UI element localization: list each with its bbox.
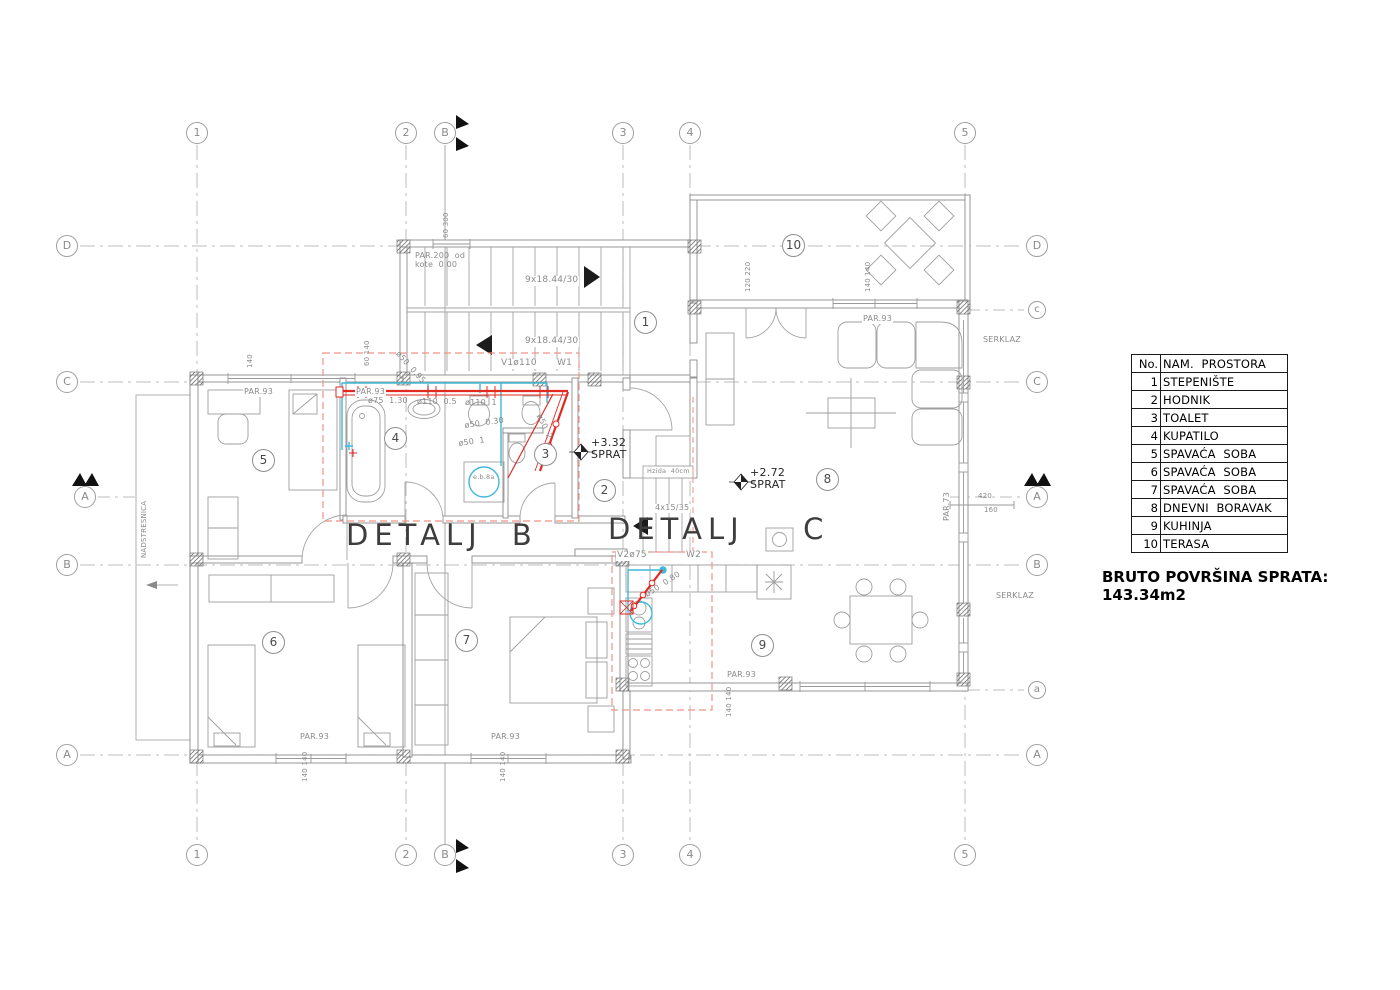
legend-room-no: 7 [1132,481,1161,499]
legend-room-name: SPAVAĆA SOBA [1161,481,1288,499]
axis-row-b-left: B [56,554,78,576]
legend-room-no: 8 [1132,499,1161,517]
room-circle-10: 10 [782,234,805,257]
legend-room-no: 1 [1132,373,1161,391]
legend-row: 9KUHINJA [1132,517,1288,535]
label-boiler: e.b.8a [473,474,495,481]
axis-col-4-bottom: 4 [679,844,701,866]
room-circle-4: 4 [384,427,407,450]
bedroom5-furniture [208,390,337,559]
label-par93-6: PAR.93 [490,733,521,742]
legend-room-name: KUHINJA [1161,517,1288,535]
legend-room-no: 6 [1132,463,1161,481]
axis-col-2-bottom: 2 [395,844,417,866]
label-serklaz-bottom: SERKLAZ [996,592,1034,601]
legend-room-name: KUPATILO [1161,427,1288,445]
pipe-label-75: ø75 1.30 [368,397,408,406]
label-v2: V2ø75 [616,551,648,561]
label-sprat-2: SPRAT [750,479,786,491]
label-w2: W2 [685,551,702,561]
dim-160: 160 [984,507,998,515]
axis-col-5-bottom: 5 [954,844,976,866]
legend-room-no: 4 [1132,427,1161,445]
legend-header-no: No. [1132,355,1161,373]
bathroom-fixtures [347,396,540,502]
stair-direction-arrows [476,266,648,535]
legend-room-name: DNEVNI BORAVAK [1161,499,1288,517]
label-par93-1: PAR.93 [243,388,274,397]
label-kote: kote 0.00 [415,261,457,270]
legend-row: 2HODNIK [1132,391,1288,409]
canopy-nadstresnica [136,395,190,740]
label-nadstresnica: NADSTRESNICA [141,501,149,558]
axis-section-b-bottom: B [434,844,456,866]
legend-room-name: TERASA [1161,535,1288,553]
grid-lines [80,145,1024,845]
legend-room-no: 10 [1132,535,1161,553]
dim-140: 140 [247,354,255,368]
room-circle-8: 8 [816,468,839,491]
room-circle-3: 3 [534,443,557,466]
axis-section-a-right: A [1026,486,1048,508]
dim-60-140: 60 140 [364,340,372,366]
dim-140-140-room7: 140 140 [500,752,508,782]
kitchen-furniture [626,565,757,686]
legend-room-name: SPAVAĆA SOBA [1161,463,1288,481]
room-circle-7: 7 [455,629,478,652]
axis-row-d-right: D [1026,235,1048,257]
label-par93-4: PAR.93 [726,671,757,680]
axis-row-b-right: B [1026,554,1048,576]
label-v1: V1ø110 [500,359,538,369]
label-w1: W1 [556,359,573,369]
label-hzida: Hzida 40cm [647,468,690,475]
axis-row-a-small-right: a [1028,681,1046,699]
detail-c-title: DETALJ C [608,512,829,546]
axis-col-5-top: 5 [954,122,976,144]
label-par73: PAR.73 [943,492,952,521]
legend-row: 8DNEVNI BORAVAK [1132,499,1288,517]
legend-row: 3TOALET [1132,409,1288,427]
room-circle-1: 1 [634,311,657,334]
axis-section-b-top: B [434,122,456,144]
bedroom6-furniture [208,575,405,747]
axis-row-d-left: D [56,235,78,257]
dim-120-220: 120 220 [745,262,753,292]
axis-col-4-top: 4 [679,122,701,144]
label-par93-5: PAR.93 [299,733,330,742]
dim-60-300: 60 300 [443,212,451,238]
axis-row-a-left: A [56,744,78,766]
legend-room-name: STEPENIŠTE [1161,373,1288,391]
dim-140-140-room6: 140 140 [302,752,310,782]
room-circle-9: 9 [751,634,774,657]
legend-row: 1STEPENIŠTE [1132,373,1288,391]
axis-col-2-top: 2 [395,122,417,144]
legend-room-name: SPAVAĆA SOBA [1161,445,1288,463]
axis-col-3-top: 3 [612,122,634,144]
legend-table: No. NAM. PROSTORA 1STEPENIŠTE 2HODNIK 3T… [1131,354,1288,553]
legend-room-name: HODNIK [1161,391,1288,409]
gross-area-note: BRUTO POVRŠINA SPRATA: 143.34m2 [1102,568,1400,604]
legend-header-row: No. NAM. PROSTORA [1132,355,1288,373]
label-stairs-upper: 9x18.44/30 [524,276,579,286]
legend-row: 5SPAVAĆA SOBA [1132,445,1288,463]
legend-room-no: 3 [1132,409,1161,427]
room-circle-6: 6 [262,631,285,654]
axis-col-1-bottom: 1 [186,844,208,866]
label-stairs-lower: 9x18.44/30 [524,337,579,347]
legend-room-no: 9 [1132,517,1161,535]
pipe-label-110a: ø110 0.5 [417,398,457,407]
axis-col-3-bottom: 3 [612,844,634,866]
detail-b-title: DETALJ B [346,518,538,552]
floor-plan-canvas: 1 2 B 3 4 5 1 2 B 3 4 5 D C A B A D c C … [0,0,1400,990]
legend-row: 4KUPATILO [1132,427,1288,445]
legend-row: 6SPAVAĆA SOBA [1132,463,1288,481]
dim-140-140-kitchen: 140 140 [726,687,734,717]
axis-row-c-small-right: c [1028,301,1046,319]
legend-room-no: 2 [1132,391,1161,409]
axis-row-c-left: C [56,371,78,393]
axis-section-a-left: A [74,486,96,508]
pipe-label-110b: ø110 1 [465,399,497,408]
legend-row: 10TERASA [1132,535,1288,553]
axis-col-1-top: 1 [186,122,208,144]
terrace-set [866,201,954,285]
legend-room-no: 5 [1132,445,1161,463]
dim-140-140-terrace: 140 140 [865,262,873,292]
dining-set [834,579,928,662]
legend-header-name: NAM. PROSTORA [1161,355,1288,373]
legend-row: 7SPAVAĆA SOBA [1132,481,1288,499]
walls [190,195,970,763]
label-par93-3: PAR.93 [862,315,893,324]
dim-420: 420 [978,493,992,501]
room-circle-5: 5 [252,449,275,472]
axis-row-a-right: A [1026,744,1048,766]
axis-row-c-right: C [1026,371,1048,393]
legend-room-name: TOALET [1161,409,1288,427]
label-serklaz-top: SERKLAZ [983,336,1021,345]
label-sprat-1: SPRAT [591,449,627,461]
living-room-furniture [706,322,962,599]
room-circle-2: 2 [593,479,616,502]
